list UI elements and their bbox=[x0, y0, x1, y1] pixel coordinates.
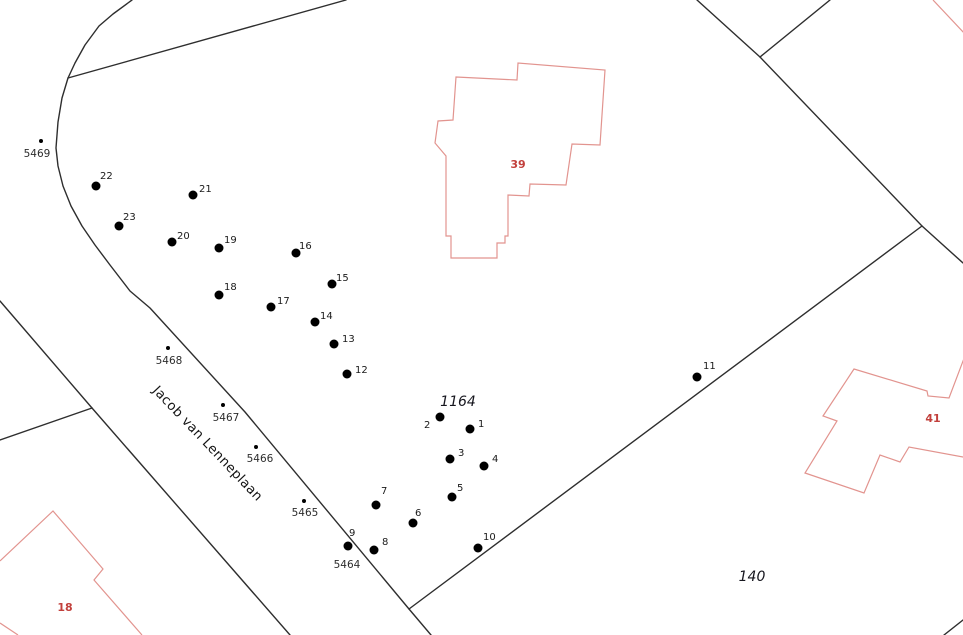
building-18-outline-corner bbox=[0, 623, 18, 635]
building-number-label-18: 18 bbox=[57, 601, 72, 614]
survey-point-label-3: 3 bbox=[458, 448, 464, 459]
building-outlines bbox=[0, 0, 963, 635]
survey-point-dot-9 bbox=[344, 542, 353, 551]
survey-point-dot-11 bbox=[693, 373, 702, 382]
cadastral-map: Jacob van Lenneplaan 1164140 394118 5469… bbox=[0, 0, 963, 635]
building-18-outline bbox=[0, 511, 142, 635]
survey-point-dot-10 bbox=[474, 544, 483, 553]
building-number-labels: 394118 bbox=[57, 158, 940, 614]
survey-point-label-7: 7 bbox=[381, 486, 387, 497]
street-northeast-boundary-line bbox=[56, 0, 431, 635]
survey-point-dot-5 bbox=[448, 493, 457, 502]
parcel-number-label-1164: 1164 bbox=[440, 394, 476, 410]
benchmark-label-5469: 5469 bbox=[24, 148, 51, 160]
survey-point-dot-8 bbox=[370, 546, 379, 555]
survey-point-dot-22 bbox=[92, 182, 101, 191]
building-number-label-41: 41 bbox=[925, 412, 940, 425]
benchmark-dot-5467 bbox=[221, 403, 225, 407]
parcel-boundary-left-branch-line bbox=[0, 408, 92, 440]
survey-point-dot-21 bbox=[189, 191, 198, 200]
survey-point-label-6: 6 bbox=[415, 508, 421, 519]
survey-point-dot-17 bbox=[267, 303, 276, 312]
survey-point-dot-1 bbox=[466, 425, 475, 434]
survey-point-dot-14 bbox=[311, 318, 320, 327]
survey-point-label-19: 19 bbox=[224, 235, 237, 246]
building-number-label-39: 39 bbox=[510, 158, 525, 171]
benchmark-dot-5465 bbox=[302, 499, 306, 503]
survey-point-dot-20 bbox=[168, 238, 177, 247]
benchmark-label-5464: 5464 bbox=[334, 559, 361, 571]
benchmark-label-5465: 5465 bbox=[292, 507, 319, 519]
survey-point-label-16: 16 bbox=[299, 241, 312, 252]
survey-point-label-22: 22 bbox=[100, 171, 113, 182]
benchmark-dot-5469 bbox=[39, 139, 43, 143]
survey-point-dot-19 bbox=[215, 244, 224, 253]
survey-point-dot-3 bbox=[446, 455, 455, 464]
street-name-label: Jacob van Lenneplaan bbox=[148, 383, 265, 505]
benchmark-dot-5468 bbox=[166, 346, 170, 350]
survey-point-label-9: 9 bbox=[349, 528, 355, 539]
survey-point-label-15: 15 bbox=[336, 273, 349, 284]
parcel-boundary-top-left-line bbox=[68, 0, 346, 78]
street-southwest-boundary-line bbox=[0, 301, 290, 635]
building-top-right-outline bbox=[933, 0, 963, 35]
survey-point-label-18: 18 bbox=[224, 282, 237, 293]
benchmark-label-5468: 5468 bbox=[156, 355, 183, 367]
parcel-boundary-top-right-line bbox=[697, 0, 963, 263]
parcel-number-label-140: 140 bbox=[739, 569, 766, 585]
survey-point-dot-7 bbox=[372, 501, 381, 510]
boundary-lines bbox=[0, 0, 963, 635]
parcel-number-labels: 1164140 bbox=[440, 394, 765, 585]
survey-point-label-1: 1 bbox=[478, 419, 484, 430]
survey-point-label-11: 11 bbox=[703, 361, 716, 372]
survey-point-label-14: 14 bbox=[320, 311, 333, 322]
survey-point-label-5: 5 bbox=[457, 483, 463, 494]
parcel-boundary-top-right-branch-line bbox=[760, 0, 830, 57]
survey-point-dot-18 bbox=[215, 291, 224, 300]
survey-point-label-17: 17 bbox=[277, 296, 290, 307]
survey-point-dot-6 bbox=[409, 519, 418, 528]
survey-point-label-12: 12 bbox=[355, 365, 368, 376]
building-41-outline bbox=[805, 290, 963, 493]
survey-point-label-2: 2 bbox=[424, 420, 430, 431]
map-canvas[interactable]: Jacob van Lenneplaan 1164140 394118 5469… bbox=[0, 0, 963, 635]
survey-points: 1234567891011121314151617181920212223 bbox=[92, 171, 716, 555]
survey-point-label-13: 13 bbox=[342, 334, 355, 345]
survey-point-label-8: 8 bbox=[382, 537, 388, 548]
parcel-1164-southeast-boundary-line bbox=[409, 226, 922, 609]
survey-point-label-21: 21 bbox=[199, 184, 212, 195]
survey-point-label-10: 10 bbox=[483, 532, 496, 543]
survey-point-dot-2 bbox=[436, 413, 445, 422]
survey-point-label-23: 23 bbox=[123, 212, 136, 223]
survey-point-dot-12 bbox=[343, 370, 352, 379]
benchmark-label-5466: 5466 bbox=[247, 453, 274, 465]
survey-point-dot-4 bbox=[480, 462, 489, 471]
survey-point-dot-13 bbox=[330, 340, 339, 349]
survey-point-label-20: 20 bbox=[177, 231, 190, 242]
benchmark-label-5467: 5467 bbox=[213, 412, 240, 424]
parcel-boundary-bottom-right-line bbox=[944, 620, 963, 635]
survey-point-label-4: 4 bbox=[492, 454, 498, 465]
benchmark-dot-5466 bbox=[254, 445, 258, 449]
